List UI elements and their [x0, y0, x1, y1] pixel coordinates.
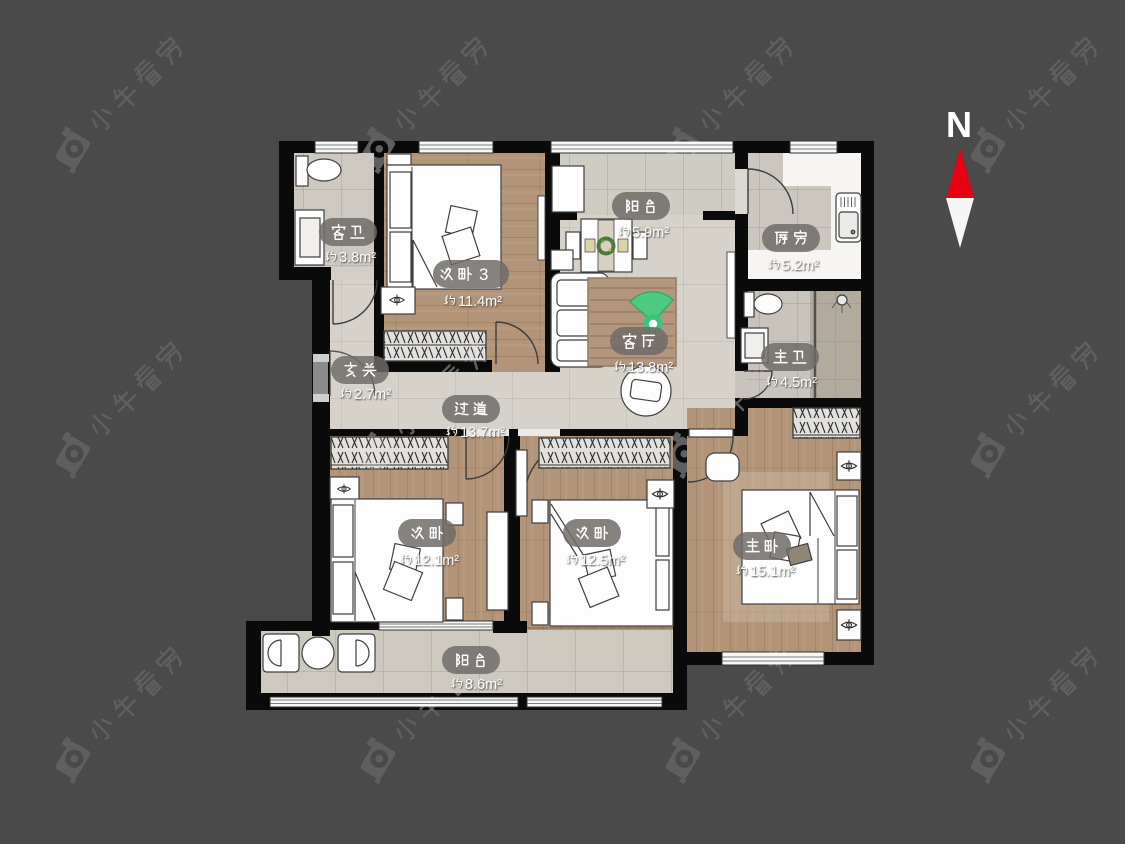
- svg-text:5.9m²: 5.9m²: [632, 225, 669, 241]
- svg-text:N: N: [946, 104, 972, 145]
- svg-text:3.8m²: 3.8m²: [339, 250, 376, 266]
- svg-text:12.1m²: 12.1m²: [414, 553, 459, 569]
- svg-text:13.8m²: 13.8m²: [628, 360, 673, 376]
- svg-text:2.7m²: 2.7m²: [354, 387, 391, 403]
- svg-text:8.6m²: 8.6m²: [465, 677, 502, 693]
- svg-text:15.1m²: 15.1m²: [750, 564, 795, 580]
- svg-text:4.5m²: 4.5m²: [780, 375, 817, 391]
- svg-text:5.2m²: 5.2m²: [782, 258, 819, 274]
- svg-text:13.7m²: 13.7m²: [460, 425, 505, 441]
- svg-text:12.5m²: 12.5m²: [580, 553, 625, 569]
- svg-text:3: 3: [479, 265, 488, 284]
- svg-text:11.4m²: 11.4m²: [458, 294, 502, 310]
